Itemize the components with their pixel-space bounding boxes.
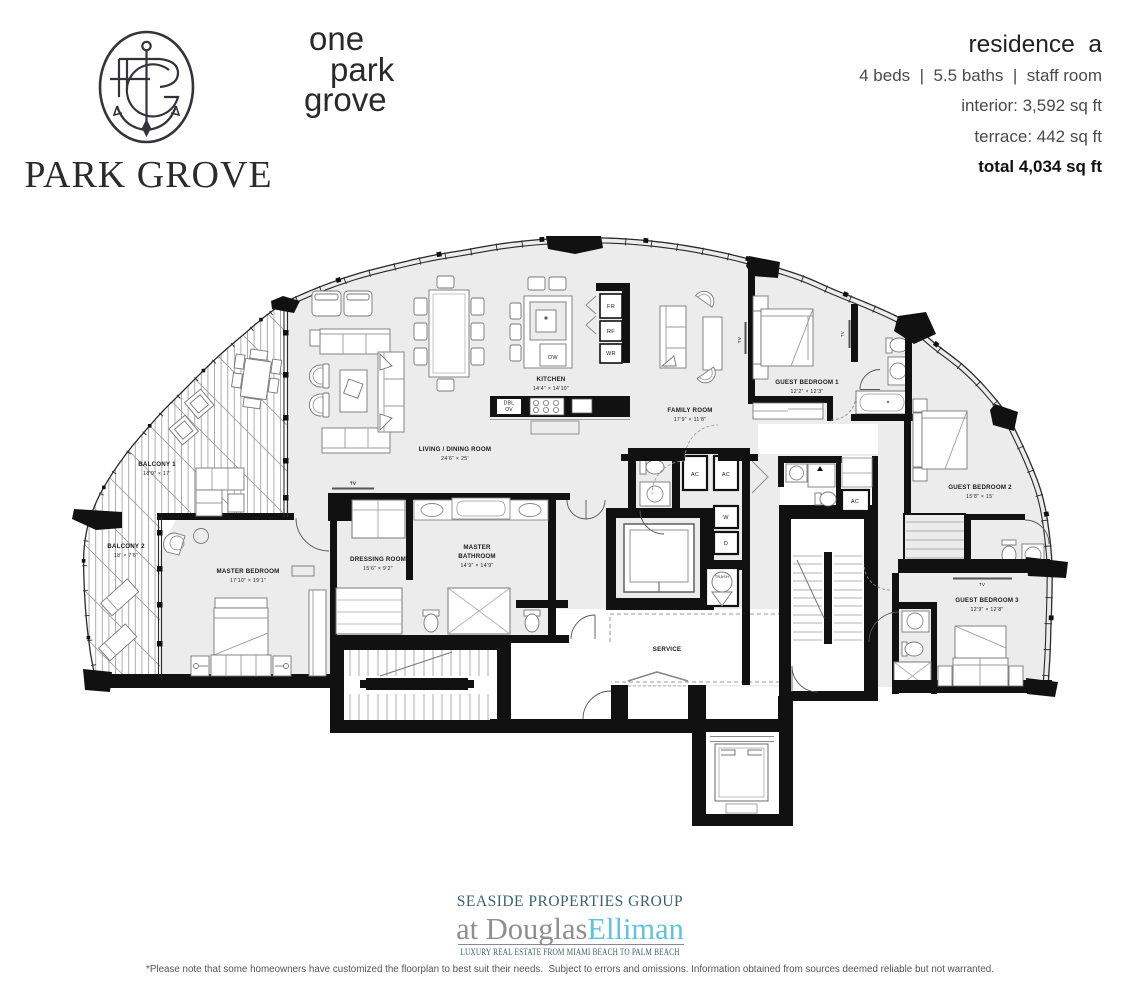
svg-text:RF: RF xyxy=(607,329,615,335)
svg-text:18’ × 7’6”: 18’ × 7’6” xyxy=(114,553,138,559)
svg-text:TV: TV xyxy=(350,481,356,486)
svg-text:17’9” × 11’8”: 17’9” × 11’8” xyxy=(674,417,707,423)
svg-text:DRESSING ROOM: DRESSING ROOM xyxy=(350,556,406,563)
svg-text:MASTER: MASTER xyxy=(463,544,491,551)
svg-text:SERVICE: SERVICE xyxy=(653,646,681,653)
svg-text:GUEST BEDROOM 3: GUEST BEDROOM 3 xyxy=(955,597,1019,604)
svg-text:AC: AC xyxy=(722,472,730,478)
svg-text:D: D xyxy=(724,541,728,547)
svg-text:14’4” × 14’10”: 14’4” × 14’10” xyxy=(533,386,569,392)
svg-text:W: W xyxy=(723,515,729,521)
svg-text:TV: TV xyxy=(840,331,845,337)
svg-text:14’9” × 14’9”: 14’9” × 14’9” xyxy=(461,563,494,569)
svg-text:15’8” × 15’: 15’8” × 15’ xyxy=(966,494,994,500)
svg-text:OV: OV xyxy=(505,407,513,413)
svg-text:15’6” × 9’2”: 15’6” × 9’2” xyxy=(363,566,393,572)
svg-text:BALCONY 2: BALCONY 2 xyxy=(107,543,145,550)
svg-text:BATHROOM: BATHROOM xyxy=(458,553,496,560)
svg-text:TV: TV xyxy=(737,337,742,343)
svg-text:DW: DW xyxy=(548,355,558,361)
svg-text:12’9” × 12’8”: 12’9” × 12’8” xyxy=(971,607,1004,613)
svg-text:AC: AC xyxy=(691,472,699,478)
svg-text:FR: FR xyxy=(607,304,615,310)
svg-text:TRASH: TRASH xyxy=(715,575,729,579)
svg-text:BALCONY 1: BALCONY 1 xyxy=(138,461,176,468)
svg-text:18’9” × 17’: 18’9” × 17’ xyxy=(143,471,171,477)
svg-text:KITCHEN: KITCHEN xyxy=(537,376,566,383)
svg-text:GUEST BEDROOM 2: GUEST BEDROOM 2 xyxy=(948,484,1012,491)
svg-text:GUEST BEDROOM 1: GUEST BEDROOM 1 xyxy=(775,379,839,386)
svg-text:AC: AC xyxy=(851,499,859,505)
svg-text:WR: WR xyxy=(606,351,616,357)
svg-text:12’2” × 12’3”: 12’2” × 12’3” xyxy=(791,389,824,395)
svg-text:LIVING / DINING ROOM: LIVING / DINING ROOM xyxy=(419,446,491,453)
svg-text:24’6” × 25’: 24’6” × 25’ xyxy=(441,456,469,462)
svg-text:MASTER BEDROOM: MASTER BEDROOM xyxy=(217,568,280,575)
svg-text:DBL: DBL xyxy=(504,401,515,407)
svg-text:FAMILY ROOM: FAMILY ROOM xyxy=(667,407,712,414)
svg-text:TV: TV xyxy=(979,582,985,587)
svg-text:17’10” × 19’1”: 17’10” × 19’1” xyxy=(230,578,266,584)
